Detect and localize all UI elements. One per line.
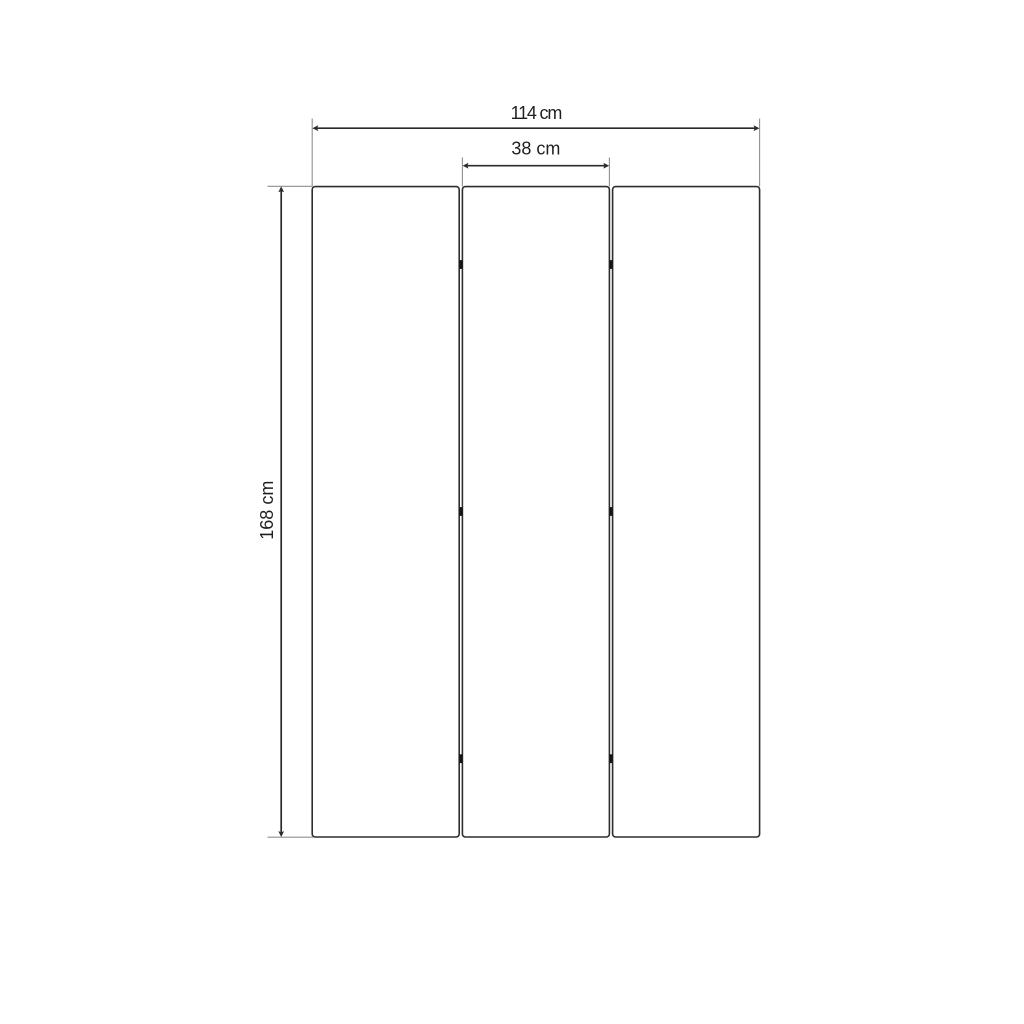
svg-text:114 cm: 114 cm: [511, 103, 562, 123]
svg-text:168 cm: 168 cm: [257, 481, 277, 540]
svg-text:38 cm: 38 cm: [511, 139, 560, 159]
